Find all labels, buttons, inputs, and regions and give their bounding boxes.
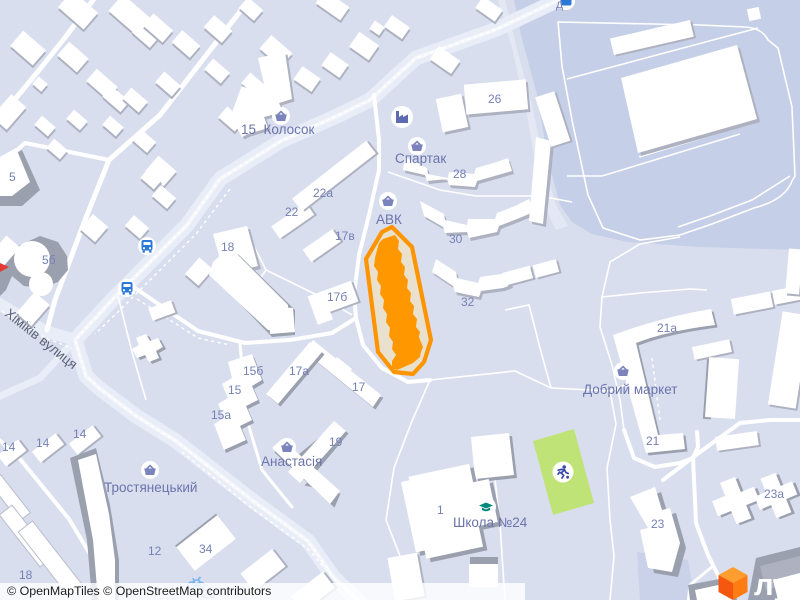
svg-text:Добрий маркет: Добрий маркет xyxy=(583,382,677,397)
svg-text:17а: 17а xyxy=(289,364,309,378)
svg-text:15б: 15б xyxy=(243,364,263,378)
svg-text:22: 22 xyxy=(285,205,299,219)
svg-text:© OpenMapTiles © OpenStreetMap: © OpenMapTiles © OpenStreetMap contribut… xyxy=(7,584,271,598)
svg-text:5б: 5б xyxy=(42,253,56,267)
svg-text:28: 28 xyxy=(453,167,467,181)
svg-text:22а: 22а xyxy=(313,186,333,200)
svg-text:18: 18 xyxy=(221,240,235,254)
svg-text:17в: 17в xyxy=(335,229,355,243)
svg-text:12: 12 xyxy=(148,544,162,558)
svg-text:Спартак: Спартак xyxy=(395,151,446,166)
svg-text:23а: 23а xyxy=(764,487,784,501)
svg-text:АВК: АВК xyxy=(376,212,402,227)
svg-text:Школа №24: Школа №24 xyxy=(453,515,528,530)
svg-text:лун: лун xyxy=(754,567,800,600)
svg-text:17б: 17б xyxy=(327,290,347,304)
svg-text:18: 18 xyxy=(19,568,33,582)
svg-text:14: 14 xyxy=(36,436,50,450)
svg-text:17: 17 xyxy=(352,380,366,394)
svg-text:32: 32 xyxy=(461,295,475,309)
svg-text:34: 34 xyxy=(199,542,213,556)
svg-text:Анастасія: Анастасія xyxy=(261,454,322,469)
svg-text:14: 14 xyxy=(2,440,16,454)
svg-text:15 Колосок: 15 Колосок xyxy=(241,122,315,137)
svg-text:15: 15 xyxy=(228,383,242,397)
svg-text:15а: 15а xyxy=(211,408,231,422)
svg-text:21: 21 xyxy=(646,434,660,448)
svg-text:д: д xyxy=(556,0,563,11)
svg-text:21а: 21а xyxy=(657,321,677,335)
svg-text:14: 14 xyxy=(73,427,87,441)
svg-text:26: 26 xyxy=(488,92,502,106)
svg-text:19: 19 xyxy=(329,435,343,449)
svg-text:30: 30 xyxy=(449,232,463,246)
svg-text:1: 1 xyxy=(437,503,444,517)
svg-text:23: 23 xyxy=(651,517,665,531)
svg-text:Тростянецький: Тростянецький xyxy=(104,480,197,495)
svg-text:5: 5 xyxy=(9,170,16,184)
